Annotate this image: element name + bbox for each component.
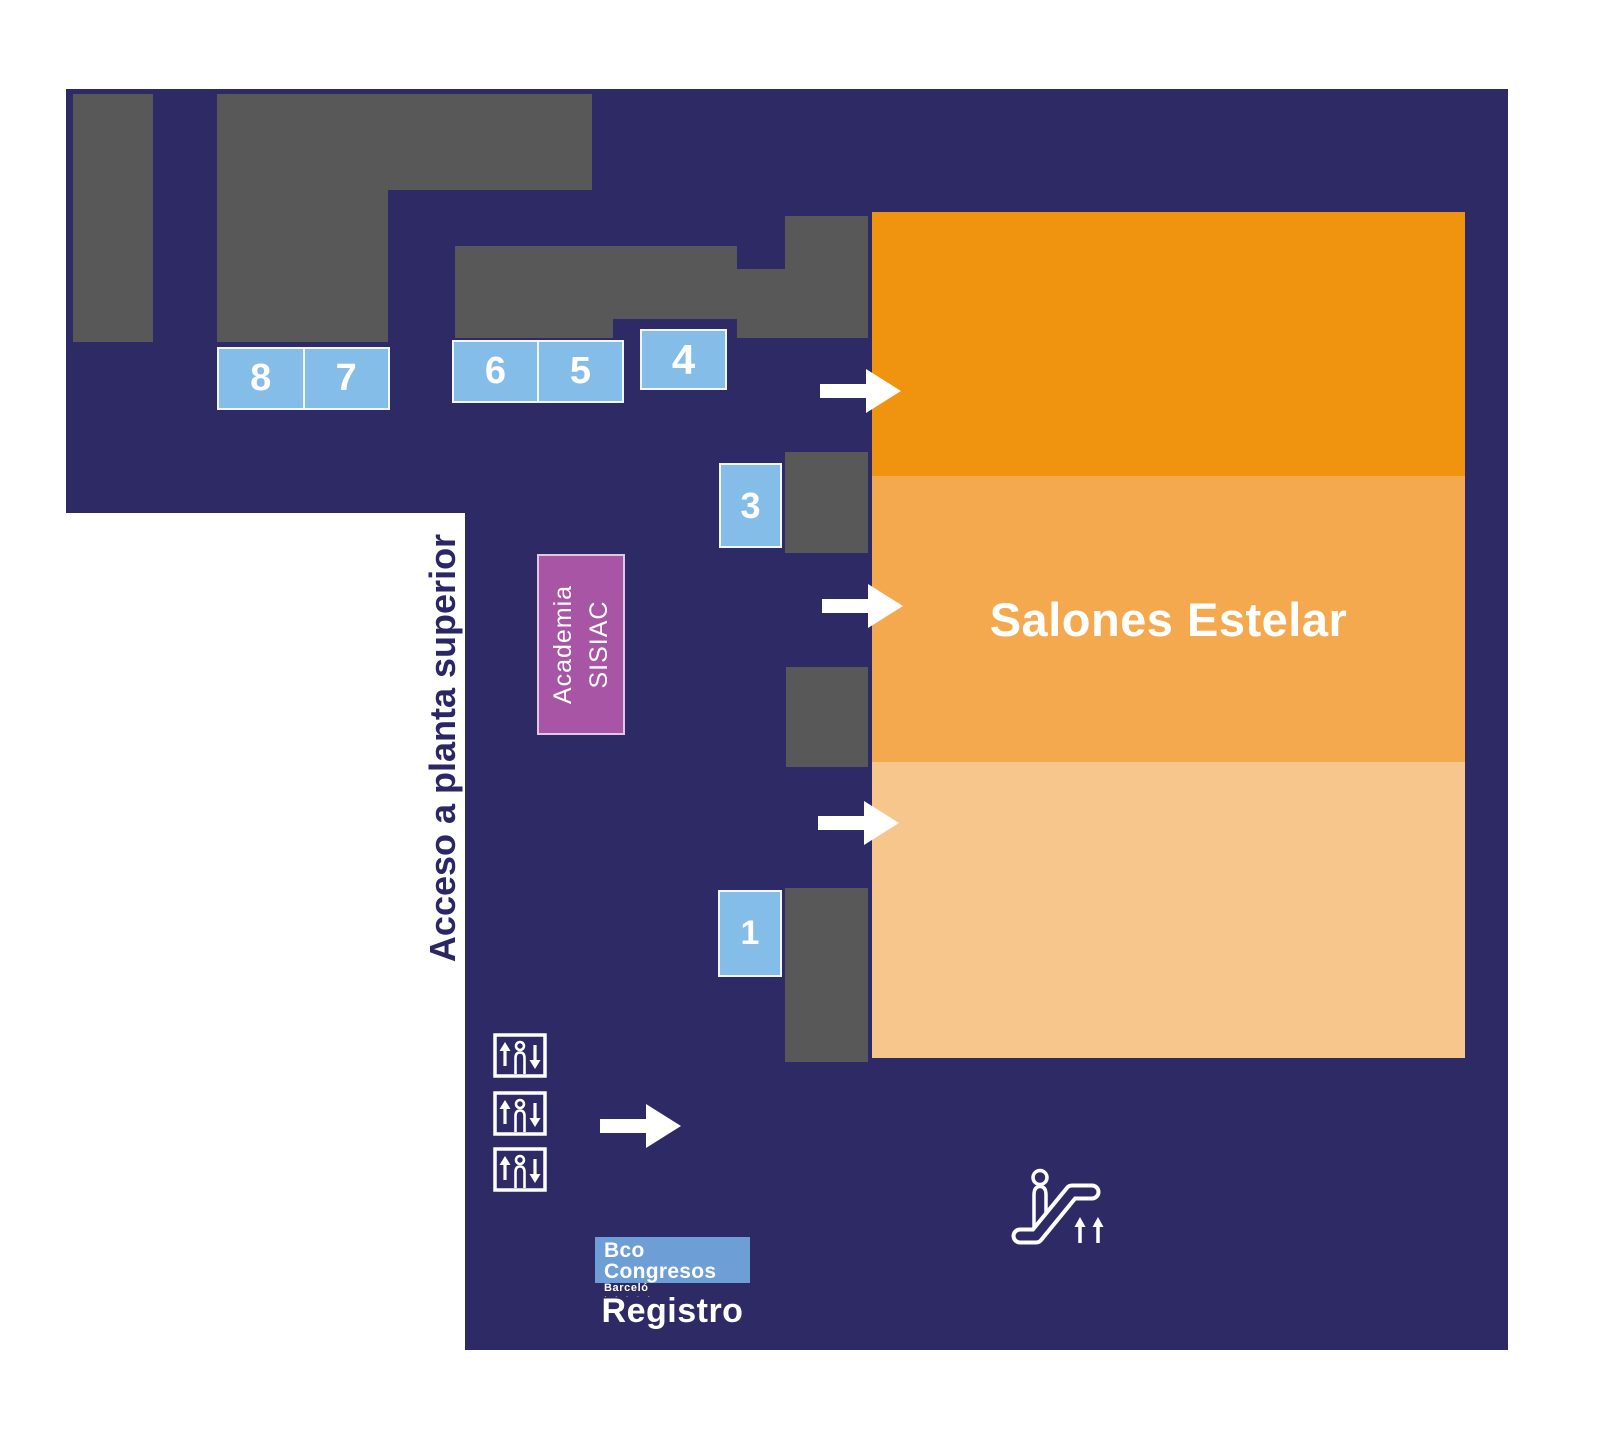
logo-main-text: Bco Congresos (604, 1240, 750, 1282)
academia-sisiac-label: Academia SISIAC (539, 556, 623, 733)
room-block-b-tall (217, 94, 388, 342)
academia-line2: SISIAC (581, 601, 617, 689)
registro-label: Registro (570, 1292, 775, 1331)
hall-section-bottom (872, 762, 1465, 1058)
elevator-icon (493, 1091, 547, 1136)
room-block-c-bridge (737, 269, 785, 338)
booth-6-5: 6 5 (452, 340, 624, 403)
right-arrow-icon (822, 583, 904, 629)
booth-8-7: 8 7 (217, 347, 390, 410)
elevator-icon (493, 1147, 547, 1192)
right-arrow-icon (820, 368, 902, 414)
booth-7: 7 (303, 349, 389, 408)
access-upper-floor-label: Acceso a planta superior (421, 528, 465, 968)
booth-1: 1 (718, 890, 782, 977)
room-block-f (786, 667, 868, 767)
academia-line1: Academia (545, 585, 581, 704)
elevator-icon (493, 1033, 547, 1078)
booth-3: 3 (719, 463, 782, 548)
hall-section-top (872, 212, 1465, 476)
right-arrow-icon (600, 1103, 682, 1149)
room-block-e (785, 452, 868, 553)
booth-6: 6 (454, 342, 537, 401)
room-block-d (785, 216, 868, 338)
room-block-c-mid (613, 246, 737, 319)
room-block-c-left (455, 246, 613, 338)
booth-5: 5 (537, 342, 622, 401)
hall-section-middle: Salones Estelar (872, 476, 1465, 762)
floor-plan-canvas: Salones Estelar 8 7 6 5 4 3 1 Academia S… (0, 0, 1600, 1442)
booth-8: 8 (219, 349, 303, 408)
room-block-a (73, 94, 153, 342)
escalator-icon (1000, 1168, 1114, 1248)
hall-name-label: Salones Estelar (872, 476, 1465, 762)
right-arrow-icon (818, 800, 900, 846)
logo-bco-congresos: Bco Congresos Barceló · · · · · (595, 1237, 750, 1283)
booth-4: 4 (640, 329, 727, 390)
room-block-g (785, 888, 868, 1062)
